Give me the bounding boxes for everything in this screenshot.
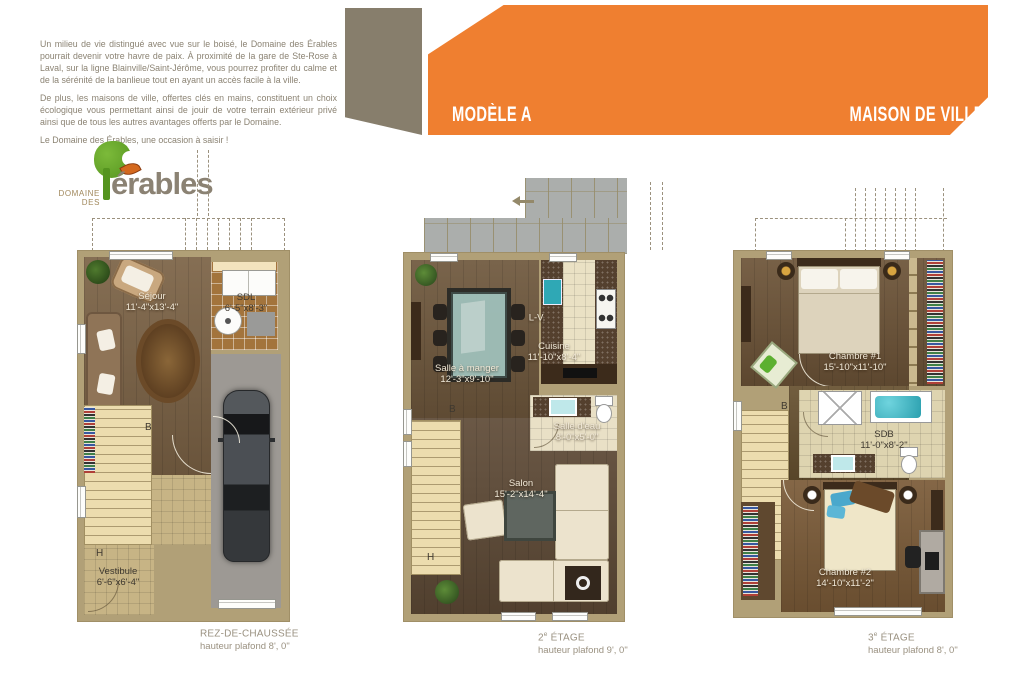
nightstand xyxy=(899,486,917,504)
caption-title: REZ-DE-CHAUSSÉE xyxy=(200,627,299,639)
label-sdl: SDL 6'-5"x8'-3" xyxy=(225,292,268,314)
window xyxy=(550,254,576,261)
lot-dash-box-rdc xyxy=(92,218,285,251)
label-chambre1: Chambre #1 15'-10"x11'-10" xyxy=(823,351,886,373)
armchair xyxy=(463,499,508,540)
door-arc xyxy=(172,435,211,474)
intro-paragraph-2: De plus, les maisons de ville, offertes … xyxy=(40,92,337,128)
terrace-lower xyxy=(424,218,627,254)
stove xyxy=(597,290,615,328)
window xyxy=(885,252,909,259)
bed xyxy=(799,267,879,353)
label-salon: Salon 15'-2"x14'-4" xyxy=(494,478,547,500)
dresser xyxy=(931,490,943,530)
pillow xyxy=(840,269,877,289)
label-door-b: B xyxy=(449,404,456,415)
laundry-counter xyxy=(213,262,276,271)
window xyxy=(835,608,921,615)
model-title: MODÈLE A xyxy=(452,103,532,127)
toilet-tank xyxy=(596,397,612,405)
patio-door xyxy=(502,613,535,620)
desk-chair xyxy=(905,546,921,568)
car-top-view xyxy=(223,390,270,562)
label-cuisine: Cuisine 11'-10"x8'-4" xyxy=(528,341,580,363)
dining-chair xyxy=(511,330,525,346)
window xyxy=(404,442,411,466)
logo-des: DES xyxy=(38,199,100,208)
taupe-accent-shape xyxy=(345,8,422,135)
door-arc xyxy=(783,480,814,511)
label-chambre2: Chambre #2 14'-10"x11'-2" xyxy=(816,567,874,589)
patio-door xyxy=(553,613,587,620)
blue-pillow xyxy=(826,505,845,519)
floor-caption-etage3: 3e ÉTAGE hauteur plafond 8', 0" xyxy=(868,631,958,656)
floor-caption-etage2: 2e ÉTAGE hauteur plafond 9', 0" xyxy=(538,631,628,656)
brochure-page: MODÈLE A MAISON DE VILLE Un milieu de vi… xyxy=(0,0,1024,693)
intro-text: Un milieu de vie distingué avec vue sur … xyxy=(40,38,337,152)
laptop xyxy=(925,552,939,570)
label-vestibule: Vestibule 6'-6"x6'-4" xyxy=(97,566,140,588)
nightstand-lamp xyxy=(883,262,901,280)
label-door-b: B xyxy=(145,422,152,433)
dishwasher xyxy=(544,280,561,304)
closet-hangers xyxy=(927,260,943,384)
window xyxy=(110,252,172,259)
window xyxy=(431,254,457,261)
label-sejour: Séjour 11'-4"x13'-4" xyxy=(126,291,178,313)
caption-sub: hauteur plafond 8', 0" xyxy=(200,641,299,652)
terrace-upper xyxy=(525,178,627,222)
dining-chair xyxy=(433,304,447,320)
floorplan-etage2: Salle à manger 12'-3"x9'-10" L-V. Cuisin… xyxy=(403,252,625,622)
plant xyxy=(415,264,437,286)
room-cuisine xyxy=(541,260,617,384)
caption-title: 3e ÉTAGE xyxy=(868,631,958,643)
bed xyxy=(825,490,895,570)
toilet xyxy=(902,456,916,473)
door-arc xyxy=(803,412,828,437)
floor-caption-rdc: REZ-DE-CHAUSSÉE hauteur plafond 8', 0" xyxy=(200,627,299,652)
floor-mat xyxy=(247,312,275,336)
toilet xyxy=(597,405,611,422)
bath-water xyxy=(875,396,921,418)
house-type-title: MAISON DE VILLE xyxy=(850,103,984,127)
staircase xyxy=(411,420,461,575)
sectional-sofa xyxy=(555,464,609,560)
bathtub xyxy=(871,392,931,422)
vanity xyxy=(533,397,591,417)
sideboard xyxy=(411,302,421,360)
closet2 xyxy=(741,502,775,600)
label-sdb: SDB 11'-0"x8'-2" xyxy=(860,429,907,451)
intro-paragraph-1: Un milieu de vie distingué avec vue sur … xyxy=(40,38,337,86)
garage xyxy=(211,354,281,608)
intro-paragraph-3: Le Domaine des Érables, une occasion à s… xyxy=(40,134,337,146)
caption-sub: hauteur plafond 9', 0" xyxy=(538,645,628,656)
floorplan-rez-de-chaussee: Séjour 11'-4"x13'-4" SDL 6'-5"x8'-3" B H… xyxy=(77,250,290,622)
caption-sub: hauteur plafond 8', 0" xyxy=(868,645,958,656)
window xyxy=(404,410,411,434)
bed-headboard xyxy=(797,258,881,267)
oval-rug xyxy=(136,319,200,403)
side-table xyxy=(565,566,601,600)
sink xyxy=(833,457,853,470)
closet-hangers xyxy=(743,506,758,596)
floorplan-etage3: Chambre #1 15'-10"x11'-10" B SDB 11'-0"x… xyxy=(733,250,953,618)
lot-dash-line xyxy=(208,150,209,216)
window xyxy=(767,252,791,259)
dining-chair xyxy=(433,330,447,346)
nightstand-lamp xyxy=(777,262,795,280)
tree-trunk xyxy=(103,168,110,200)
window xyxy=(734,402,741,430)
garage-door xyxy=(219,600,275,608)
lot-dash-line-e3 xyxy=(755,218,947,219)
label-salle-eau: Salle d'eau 8'-0"x5'-0" xyxy=(554,421,601,443)
dining-chair xyxy=(511,356,525,372)
vanity xyxy=(813,454,875,473)
window xyxy=(78,487,85,517)
dining-chair xyxy=(511,304,525,320)
coffee-table xyxy=(507,494,553,538)
accent-chair xyxy=(753,344,795,386)
logo-wordmark-small: DOMAINE DES xyxy=(38,190,100,207)
pillow xyxy=(801,269,838,289)
tv xyxy=(563,368,597,378)
label-door-h: H xyxy=(427,552,434,563)
label-salle-a-manger: Salle à manger 12'-3"x9'-10" xyxy=(435,363,499,385)
storage-shelf xyxy=(84,407,95,473)
closet-bifold-doors xyxy=(909,258,917,386)
lot-dash-line xyxy=(197,150,198,216)
plant xyxy=(435,580,459,604)
room-salle-a-manger xyxy=(411,260,539,418)
label-lave-vaisselle: L-V. xyxy=(529,313,546,324)
caption-title: 2e ÉTAGE xyxy=(538,631,628,643)
plant xyxy=(86,260,110,284)
sink xyxy=(551,400,575,414)
room-chambre2 xyxy=(781,480,945,612)
dresser xyxy=(741,286,751,342)
car-mirror xyxy=(269,438,275,442)
kitchen-cabinets xyxy=(541,364,617,384)
label-door-b: B xyxy=(781,401,788,412)
label-door-h: H xyxy=(96,548,103,559)
window xyxy=(78,325,85,353)
desk xyxy=(921,532,943,592)
